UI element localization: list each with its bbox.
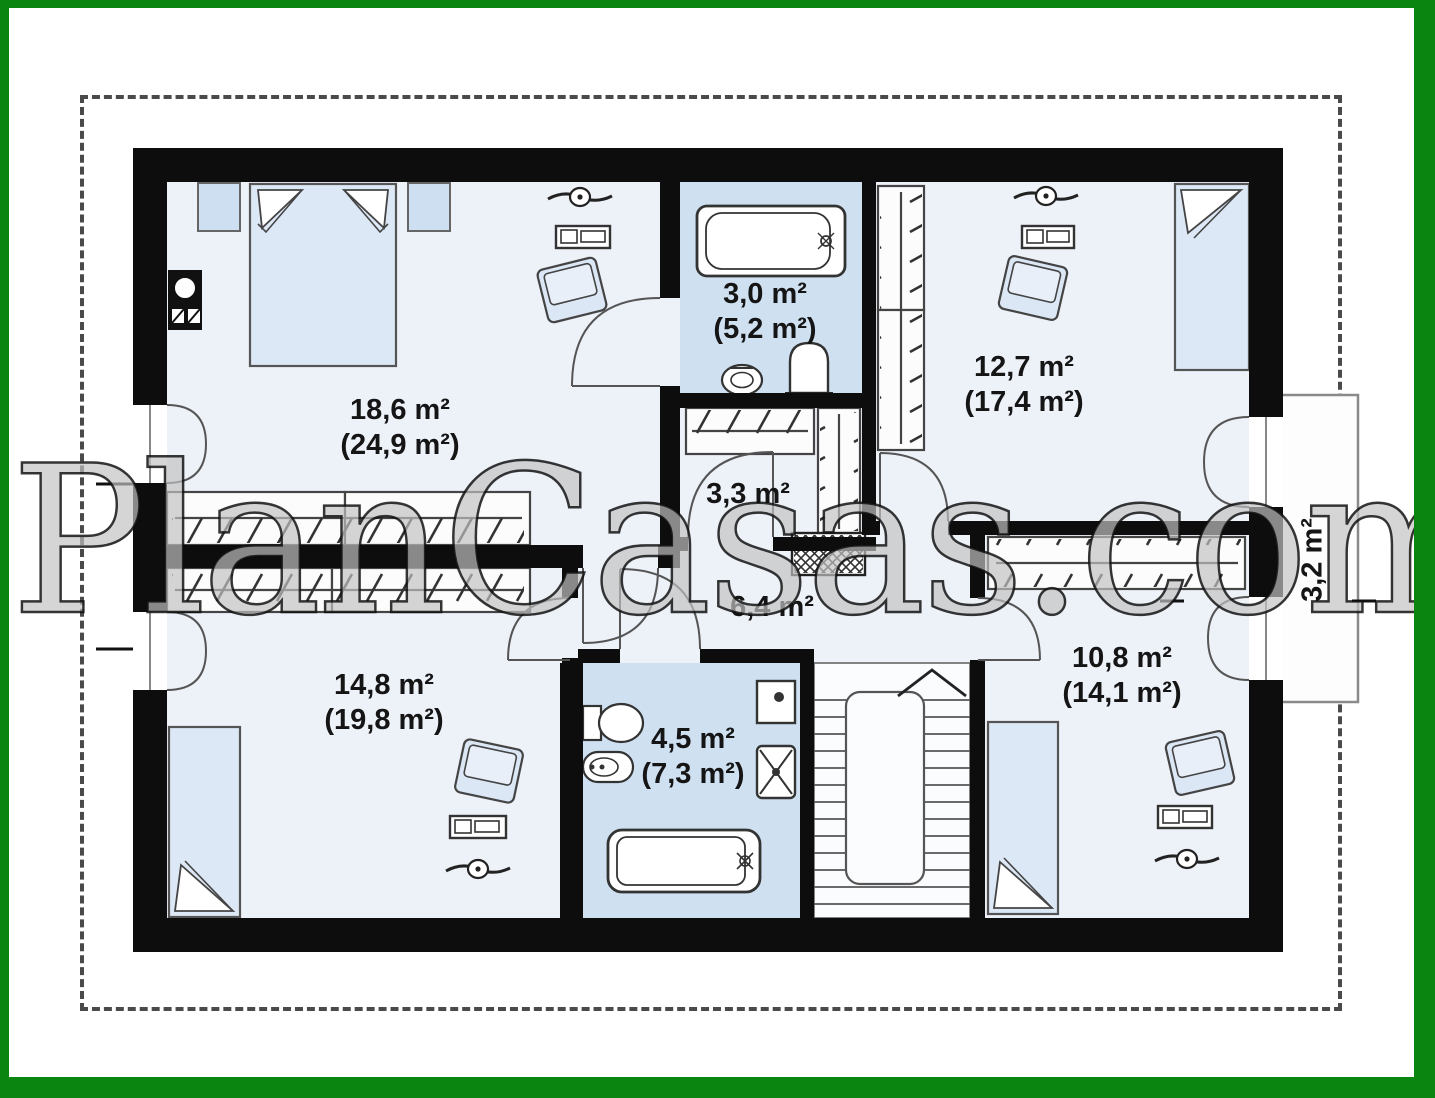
floor-plan-page: 18,6 m² (24,9 m²) 3,0 m² (5,2 m²) 12,7 m…: [0, 0, 1435, 1098]
water-heater-icon: [785, 343, 833, 394]
toilet-icon: [583, 704, 643, 742]
staircase: [814, 663, 970, 918]
wardrobe-icon: [878, 186, 924, 450]
single-bed-icon: [1175, 184, 1249, 370]
double-bed-icon: [250, 184, 396, 366]
label-bedroom-bottom-left: 14,8 m² (19,8 m²): [324, 668, 443, 738]
label-bathroom-bottom: 4,5 m² (7,3 m²): [641, 722, 744, 792]
stove-icon: [168, 270, 202, 330]
desk-icon: [1158, 806, 1212, 828]
desk-icon: [556, 226, 610, 248]
toilet-icon: [722, 365, 762, 395]
bathtub-icon: [608, 830, 760, 892]
desk-icon: [450, 816, 506, 838]
label-bathroom-top: 3,0 m² (5,2 m²): [713, 277, 816, 347]
desk-icon: [1022, 226, 1074, 248]
single-bed-icon: [169, 727, 240, 917]
sink-icon: [583, 752, 633, 782]
heater-icon: [757, 746, 795, 798]
watermark: PlanCasas.com: [11, 440, 1424, 645]
label-bedroom-top-right: 12,7 m² (17,4 m²): [964, 350, 1083, 420]
bathtub-icon: [697, 206, 845, 276]
washing-machine-icon: [757, 681, 795, 723]
single-bed-icon: [988, 722, 1058, 914]
armchair-icon: [454, 738, 524, 803]
